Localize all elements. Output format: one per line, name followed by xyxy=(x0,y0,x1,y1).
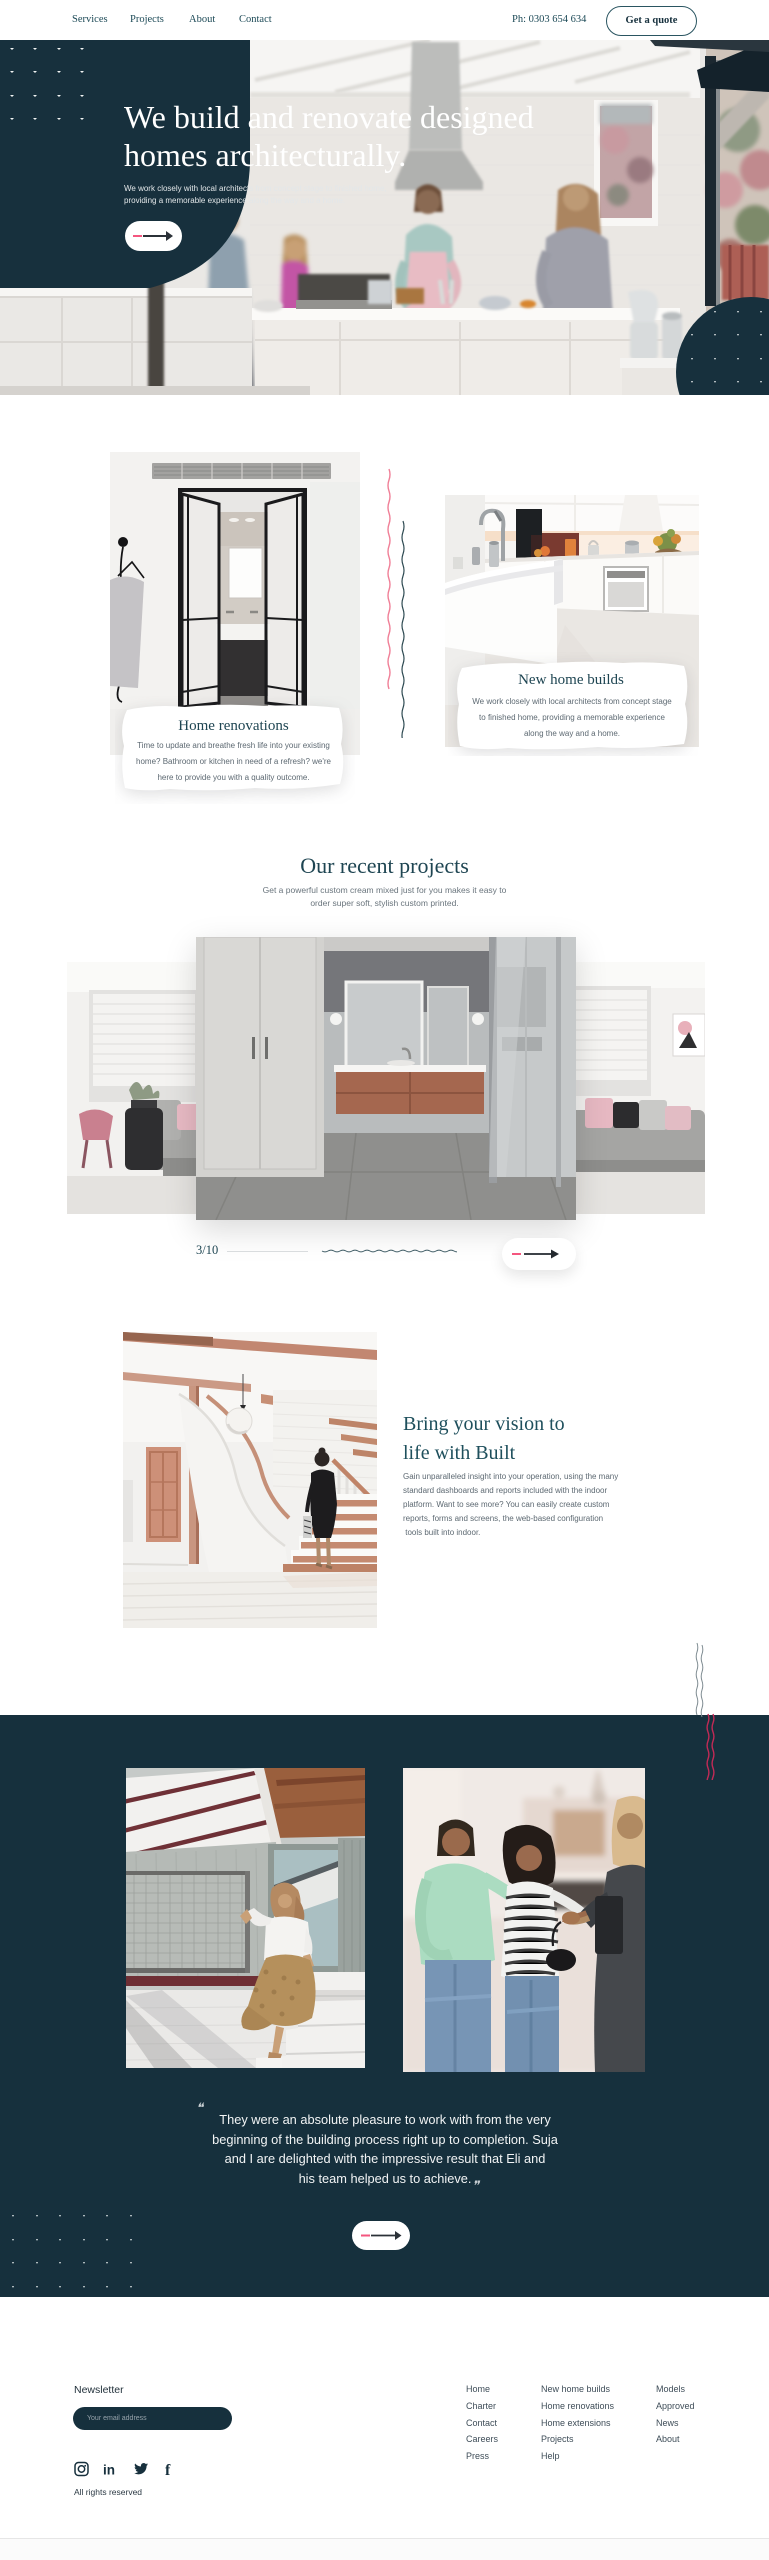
svg-text:in: in xyxy=(103,2463,115,2478)
svg-text:f: f xyxy=(165,2462,171,2478)
